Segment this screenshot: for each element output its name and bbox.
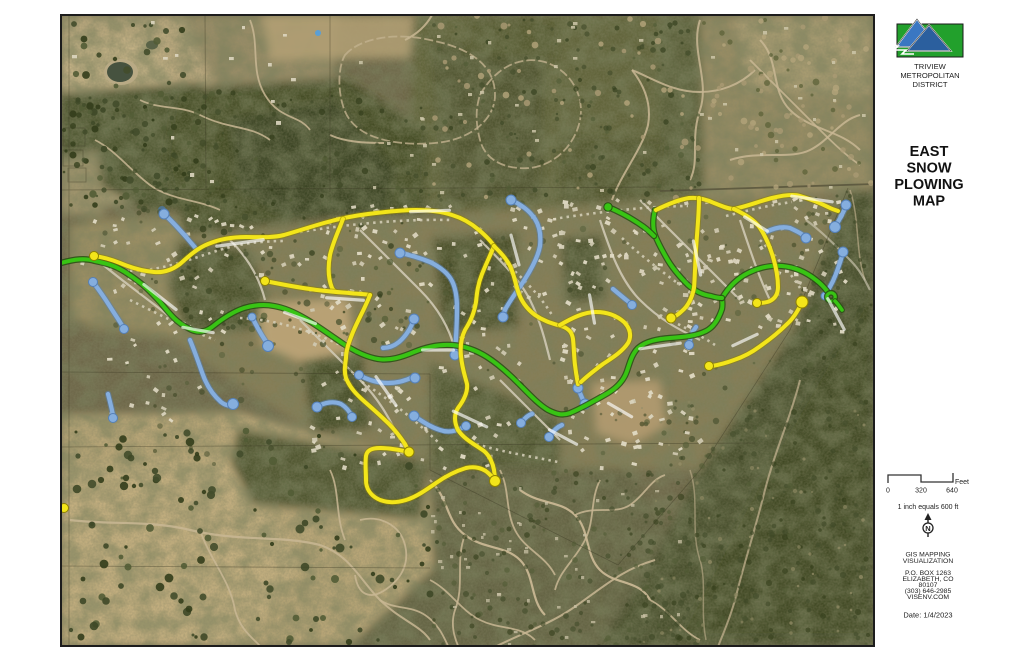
svg-text:MAP: MAP	[913, 194, 946, 210]
svg-text:1 inch equals 600 ft: 1 inch equals 600 ft	[898, 504, 959, 511]
svg-text:N: N	[925, 524, 930, 533]
svg-text:DISTRICT: DISTRICT	[912, 80, 947, 89]
svg-text:640: 640	[946, 488, 958, 495]
svg-text:Feet: Feet	[955, 479, 969, 486]
svg-text:METROPOLITAN: METROPOLITAN	[900, 71, 959, 80]
svg-text:320: 320	[915, 488, 927, 495]
svg-text:VISUALIZATION: VISUALIZATION	[903, 558, 954, 565]
svg-text:0: 0	[886, 488, 890, 495]
svg-text:SNOW: SNOW	[906, 161, 951, 177]
svg-text:EAST: EAST	[910, 144, 949, 160]
svg-text:PLOWING: PLOWING	[894, 177, 963, 193]
svg-text:TRIVIEW: TRIVIEW	[914, 62, 946, 71]
svg-text:VISENV.COM: VISENV.COM	[907, 594, 949, 601]
svg-text:Date: 1/4/2023: Date: 1/4/2023	[903, 611, 952, 620]
